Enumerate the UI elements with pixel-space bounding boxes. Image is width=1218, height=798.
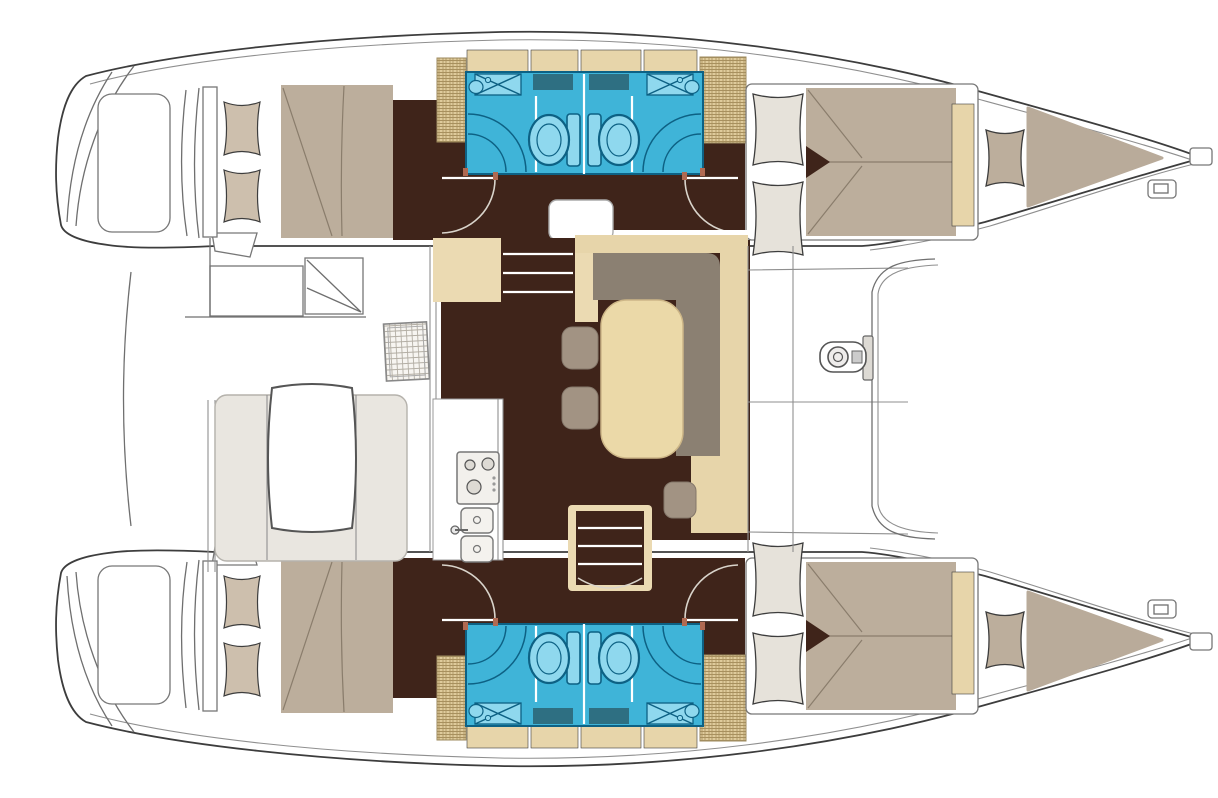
stove-knob [492, 488, 495, 491]
catamaran-floor-plan [0, 0, 1218, 798]
head-inset-bench [589, 74, 629, 90]
locker-shelves [700, 57, 746, 143]
coachroof-edge-inner [878, 265, 938, 533]
door-post [463, 168, 468, 176]
burner [467, 480, 481, 494]
cockpit-table [268, 384, 356, 532]
double-bed-mattress [281, 85, 393, 238]
sink-bowl [461, 536, 493, 562]
headboard-shelf [203, 87, 217, 237]
forward-windows [748, 246, 938, 552]
sofa-backrest [720, 236, 748, 456]
door-post [682, 172, 687, 180]
stair-side-tan [433, 238, 501, 302]
toilet-bowl [599, 115, 639, 165]
stair-landing [549, 200, 613, 240]
deck-hatch [384, 322, 430, 381]
winch-mount [852, 351, 862, 363]
bow-sunpad [1028, 108, 1162, 206]
mast-winch [820, 336, 873, 380]
pillow [224, 102, 260, 155]
burner [482, 458, 494, 470]
stool [664, 482, 696, 518]
swim-platform [98, 94, 170, 232]
washbasin [469, 81, 483, 94]
cleat [1148, 180, 1176, 198]
stairs-starboard [568, 505, 652, 591]
toilet-bowl [529, 115, 569, 165]
door-post [700, 168, 705, 176]
davit-beam [124, 272, 132, 526]
bow-shelf [952, 104, 974, 226]
stool [562, 327, 598, 369]
port-hull [56, 32, 1212, 257]
pillow [224, 170, 260, 222]
faucet [485, 77, 490, 82]
galley [433, 399, 503, 562]
cockpit-aft-wall [208, 400, 215, 572]
cockpit [185, 238, 436, 572]
bow-cleat [1148, 180, 1176, 198]
head-compartments [466, 72, 703, 174]
faucet [677, 77, 682, 82]
stove [457, 452, 499, 504]
coachroof-edge [872, 259, 935, 539]
head-inset-bench [533, 74, 573, 90]
forward-cabin [746, 84, 978, 255]
center-deck [124, 200, 939, 591]
bow-cushion [986, 130, 1024, 186]
stove-knob [492, 476, 495, 479]
stair-treads [576, 511, 644, 585]
washbasin [685, 81, 699, 94]
window-line [748, 268, 908, 534]
helm-seat [210, 266, 303, 316]
burner [465, 460, 475, 470]
pillow [753, 182, 803, 255]
stern-step [212, 233, 257, 257]
pillow [753, 94, 803, 165]
bow-roller [1190, 148, 1212, 165]
stair-treads [501, 238, 575, 304]
aft-cabinet [691, 455, 748, 533]
stool [562, 387, 598, 429]
floor-plan-canvas [0, 0, 1218, 798]
door-post [493, 172, 498, 180]
winch-drum [828, 347, 848, 367]
dining-table [601, 300, 683, 458]
locker-shelves [437, 58, 466, 142]
stove-knob [492, 482, 495, 485]
